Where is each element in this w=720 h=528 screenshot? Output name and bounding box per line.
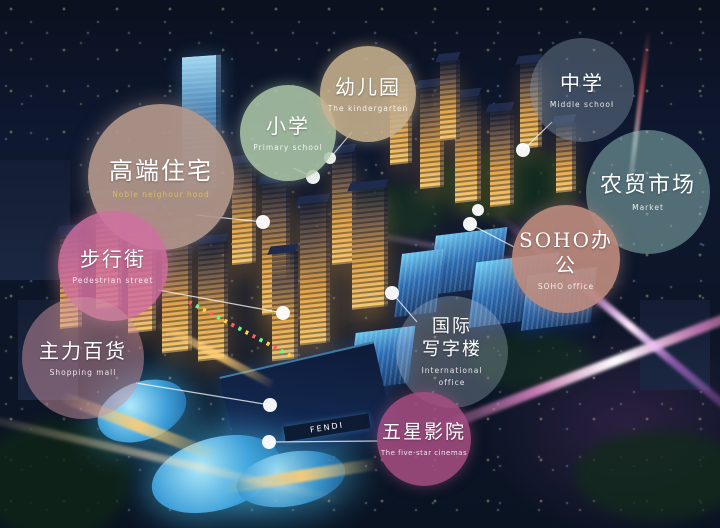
callout-label-zh: 步行街 xyxy=(80,247,146,272)
callout-bubble-middle-school: 中学 Middle school xyxy=(530,38,634,142)
callout-label-zh: 高端住宅 xyxy=(109,156,213,186)
callout-bubble-five-star-cinema: 五星影院 The five-star cinemas xyxy=(377,392,471,486)
callout-label-zh: SOHO办公 xyxy=(512,228,620,278)
callout-label-en: Market xyxy=(632,203,664,212)
callout-label-zh: 国际 写字楼 xyxy=(422,316,482,361)
callout-label-en: Middle school xyxy=(550,100,614,109)
callout-label-en: Noble neighour hood xyxy=(112,190,210,199)
callout-label-en: The kindergarten xyxy=(328,104,409,113)
callout-bubble-kindergarten: 幼儿园 The kindergarten xyxy=(320,46,416,142)
masterplan-night-render: FENDI 高端住宅 Noble neighour ho xyxy=(0,0,720,528)
callout-label-en: SOHO office xyxy=(538,282,594,291)
callout-label-zh: 主力百货 xyxy=(39,339,127,364)
callout-label-zh: 幼儿园 xyxy=(335,75,401,100)
callout-label-zh: 小学 xyxy=(266,114,310,139)
callout-label-zh: 五星影院 xyxy=(382,421,466,445)
callout-label-zh: 中学 xyxy=(560,71,604,96)
callout-label-en: Pedestrian street xyxy=(73,276,154,285)
callout-bubble-international-office: 国际 写字楼 International office xyxy=(396,296,508,408)
callout-bubble-soho-office: SOHO办公 SOHO office xyxy=(512,205,620,313)
callout-label-zh: 农贸市场 xyxy=(600,172,696,200)
callout-label-en: Shopping mall xyxy=(50,368,117,377)
callout-bubble-department-store: 主力百货 Shopping mall xyxy=(22,297,144,419)
callout-label-en: The five-star cinemas xyxy=(381,449,467,457)
callout-label-en: International office xyxy=(417,365,487,388)
callout-label-en: Primary school xyxy=(253,143,322,152)
